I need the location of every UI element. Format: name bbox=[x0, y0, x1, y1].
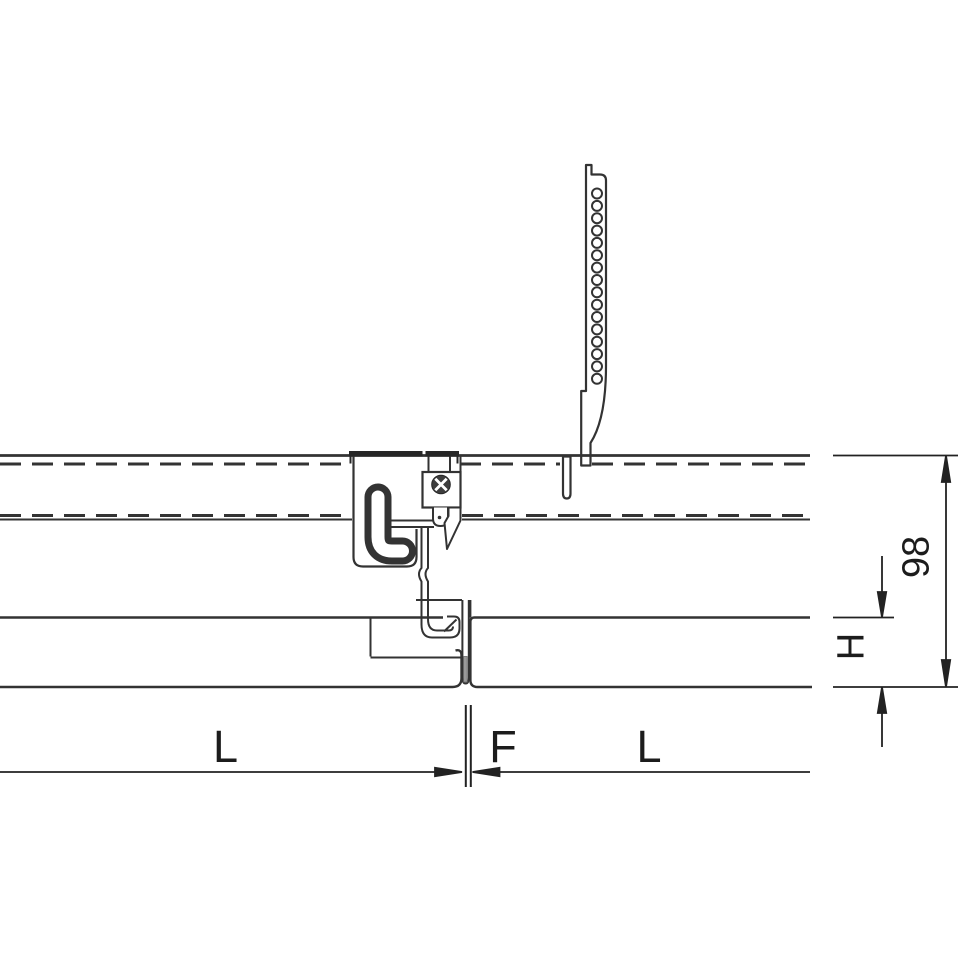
dim-label-L-left: L bbox=[213, 721, 238, 772]
dim-label-98: 98 bbox=[896, 536, 938, 578]
right-panel bbox=[470, 600, 812, 687]
dim-label-H: H bbox=[831, 633, 873, 660]
bracket-flange-ends bbox=[351, 457, 458, 464]
bracket-l-slot bbox=[378, 497, 403, 551]
screw-channel bbox=[429, 457, 461, 473]
tab-rivet-dot bbox=[438, 516, 442, 520]
left-panel-face bbox=[0, 650, 462, 687]
arrow-up-icon bbox=[942, 456, 950, 482]
strap-hook bbox=[563, 457, 571, 499]
technical-drawing-page: 98 H L F L bbox=[0, 0, 960, 958]
section-hatch bbox=[464, 657, 468, 683]
dim-label-F: F bbox=[489, 721, 517, 772]
arrow-down-icon bbox=[878, 592, 886, 617]
technical-drawing: 98 H L F L bbox=[0, 0, 960, 958]
dimension-joint-ticks bbox=[466, 705, 471, 787]
dimension-lines bbox=[0, 456, 958, 788]
carrier-rail bbox=[0, 456, 810, 520]
arrow-right-icon bbox=[435, 768, 462, 776]
arrow-down-icon bbox=[942, 660, 950, 687]
clip-tongue bbox=[419, 527, 460, 638]
screw-head-icon bbox=[432, 475, 451, 494]
left-panel bbox=[0, 618, 462, 688]
suspension-bracket bbox=[349, 451, 461, 567]
dim-label-L-right: L bbox=[636, 721, 661, 772]
right-panel-profile bbox=[470, 618, 812, 688]
arrow-up-icon bbox=[878, 687, 886, 713]
bracket-shelf bbox=[390, 521, 434, 528]
bracket-flange bbox=[349, 451, 459, 457]
